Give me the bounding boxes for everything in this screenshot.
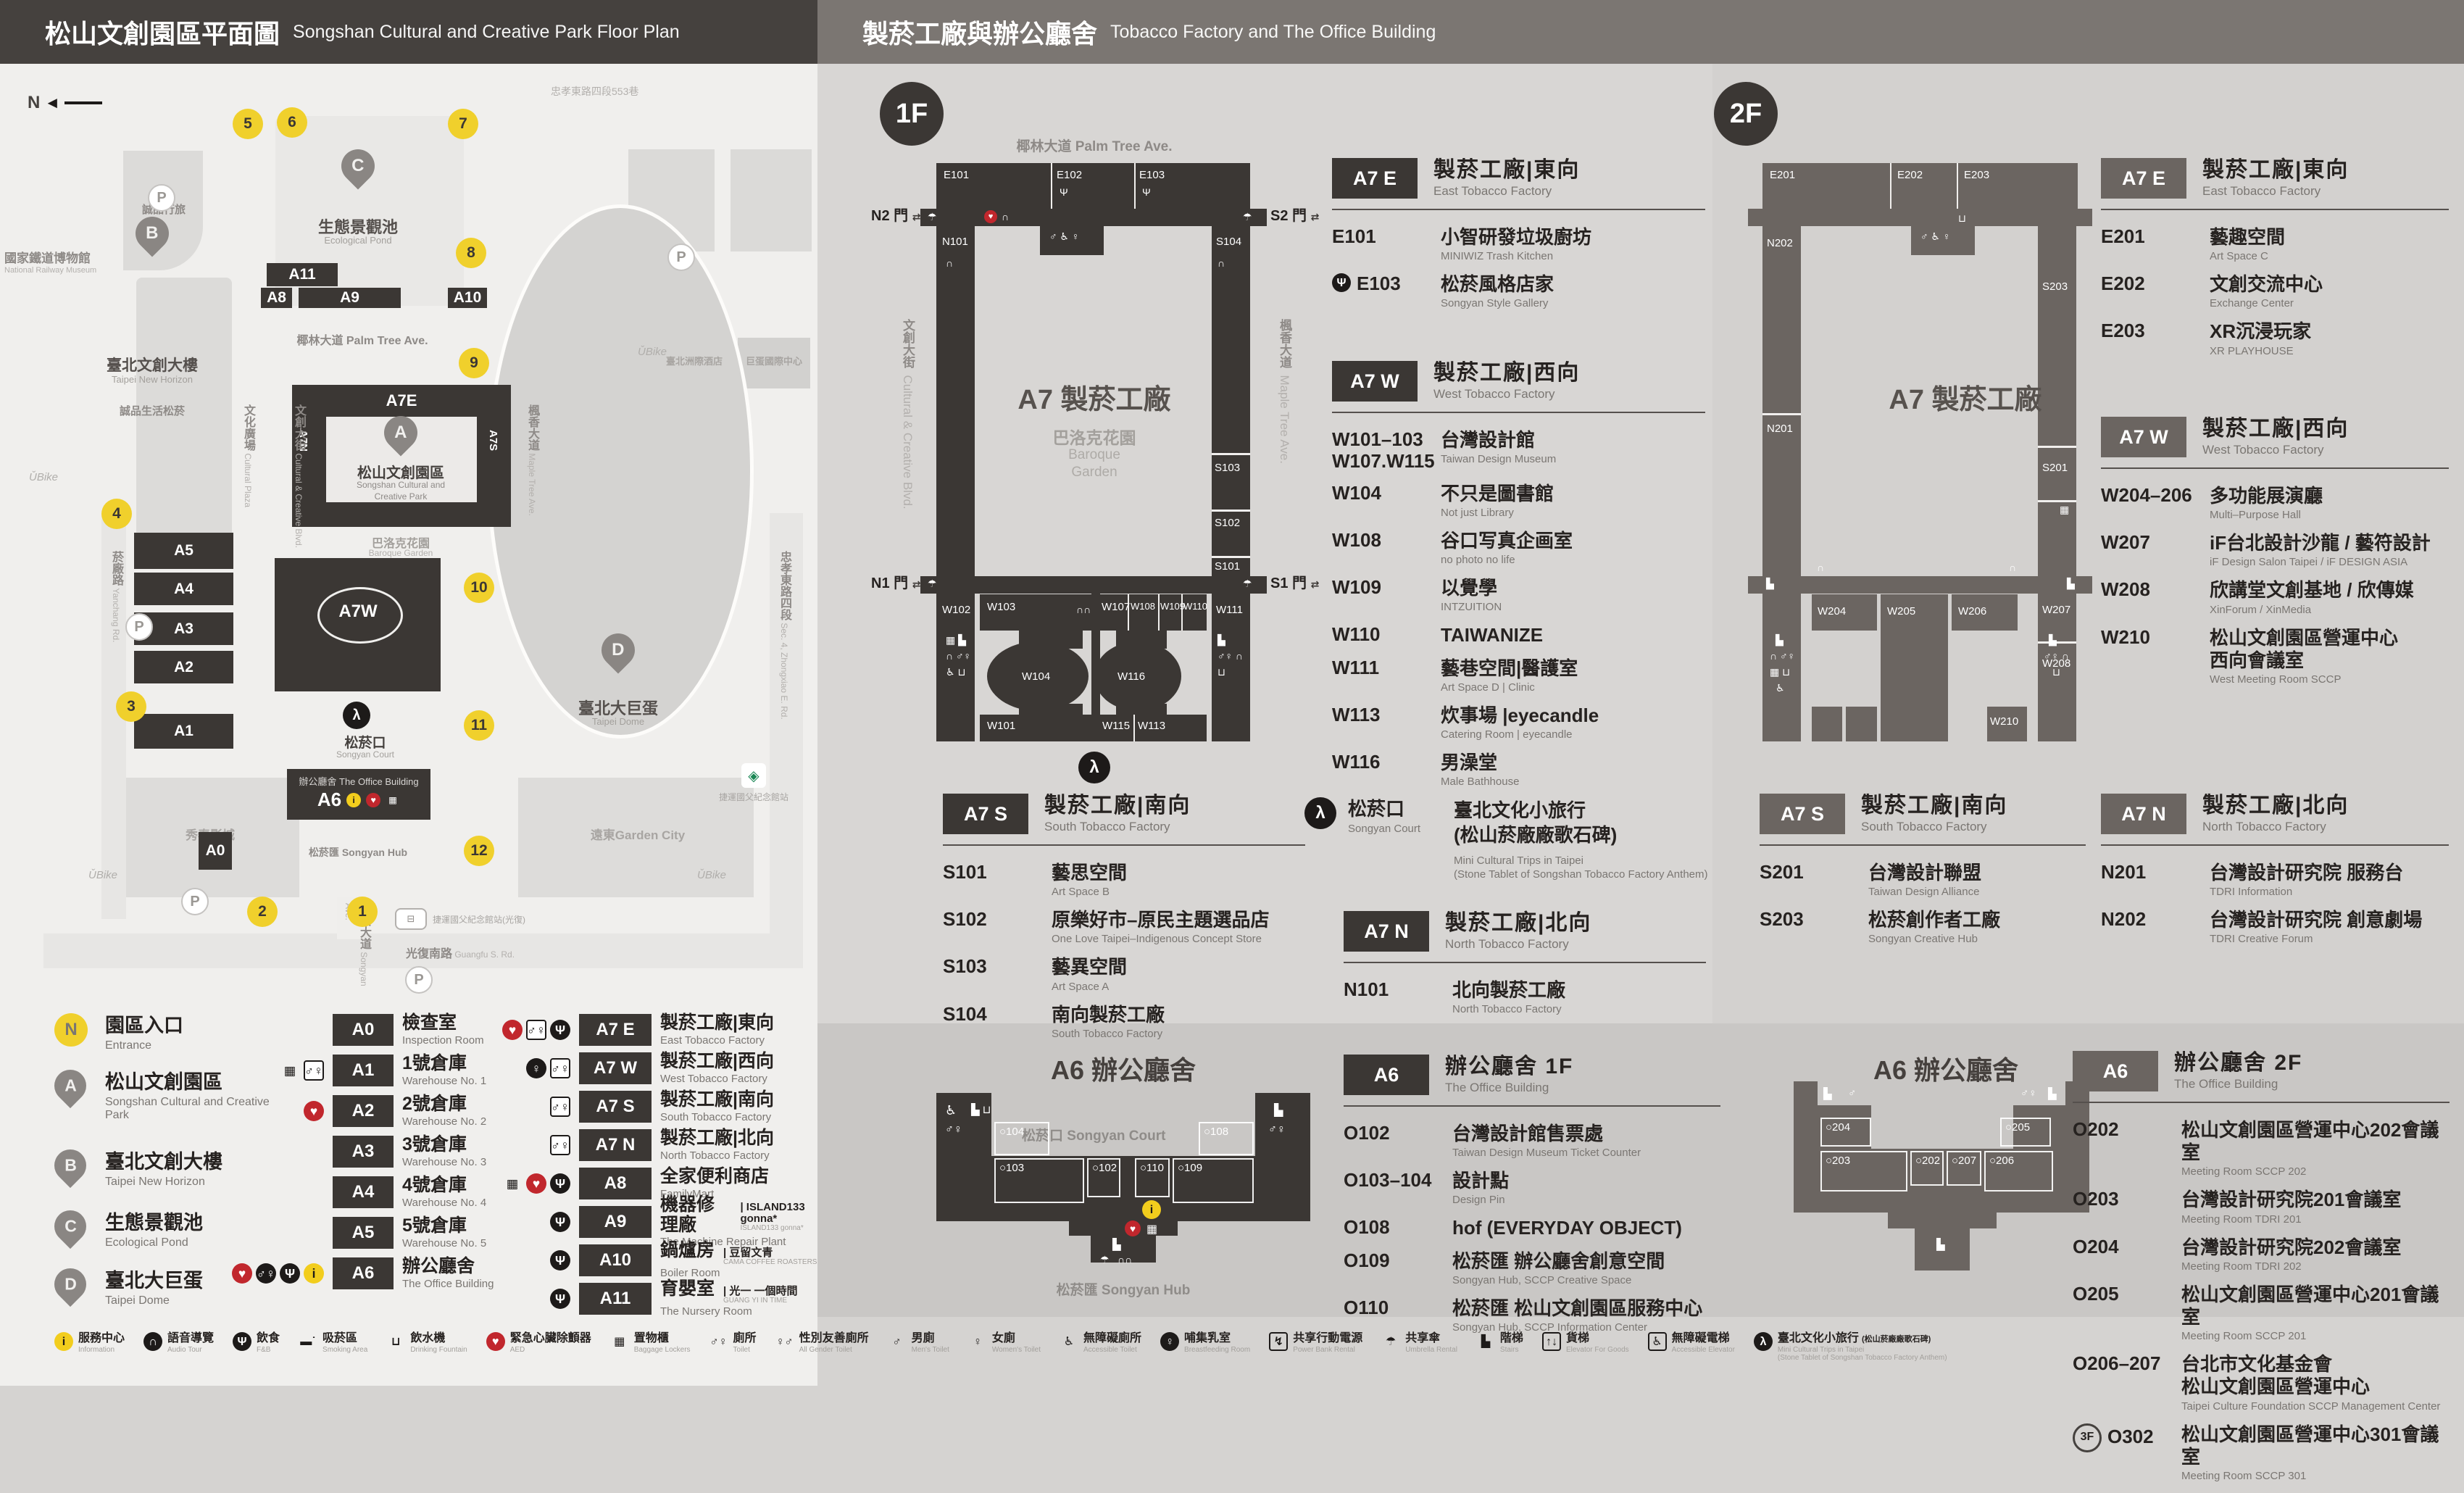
room-en: One Love Taipei–Indigenous Concept Store [1052, 933, 1269, 946]
songshan-park-floor-plan: { "header_left": {"zh": "松山文創園區平面圖", "en… [0, 0, 2464, 1386]
room-zh: 台灣設計館 [1441, 429, 1556, 452]
facility-icon: ♂ [1848, 1087, 1856, 1099]
room-code: W101–103W107.W115 [1332, 429, 1441, 473]
facility-icon: ▙ [1936, 1238, 1945, 1251]
room-O202: ○202 [1910, 1151, 1944, 1186]
f1-a7w-list-row-W108: W108谷口写真企画室no photo no life [1332, 530, 1705, 567]
a6-office-line: 辦公廳舍 The Office Building [287, 774, 430, 788]
garden-city-label: 遠東Garden City [529, 825, 746, 843]
toilet-icon: ♂♀ [550, 1058, 570, 1078]
room-text: 松菸匯 松山文創園區服務中心Songyan Hub, SCCP Informat… [1452, 1297, 1702, 1334]
trips-icon: λ [1754, 1332, 1773, 1351]
room-zh: 松菸風格店家 [1441, 273, 1554, 296]
f1-a7n-list-header: A7 N製菸工廠|北向North Tobacco Factory [1344, 911, 1706, 952]
f2-a7e-list-rule [2101, 209, 2449, 210]
legend-factory-A7E: ♥♂♀ΨA7 E製菸工廠|東向East Tobacco Factory [504, 1013, 774, 1047]
f2-a7n-list-tile: A7 N [2101, 794, 2186, 834]
room-code: O110 [1344, 1297, 1452, 1334]
facility-icon: ▙ [1218, 634, 1225, 646]
room-O207: ○207 [1947, 1151, 1981, 1186]
new-horizon-block [136, 278, 232, 560]
a7-factory-label-2f: A7 製菸工廠 [1748, 377, 2183, 417]
songyan-court-walk-icon: λ [1078, 752, 1110, 783]
left-header-title-zh: 松山文創園區平面圖 [45, 13, 280, 51]
room-W207: W207 [2042, 604, 2070, 616]
f1-a7w-list-row-W110: W110TAIWANIZE [1332, 624, 1705, 646]
legend-place-C: C生態景觀池Ecological Pond [54, 1210, 203, 1249]
facility-icon: ∩ [2009, 562, 2016, 573]
room-en: TDRI Creative Forum [2210, 933, 2422, 946]
f1-a7w-list-row-W101–103: W101–103W107.W115台灣設計館Taiwan Design Muse… [1332, 429, 1705, 473]
room-O108: ○108 [1199, 1122, 1254, 1155]
toilet-icon: ♂♀ [304, 1060, 324, 1081]
room-en: Catering Room | eyecandle [1441, 728, 1599, 741]
room-en: Meeting Room SCCP 202 [2181, 1165, 2450, 1178]
facility-icon: ∩ ♂♀ [1770, 650, 1795, 662]
place-pin-B: B [54, 1149, 88, 1183]
room-en: no photo no life [1441, 554, 1573, 567]
f1-a7s-list-header: A7 S製菸工廠|南向South Tobacco Factory [943, 794, 1305, 834]
place-pin-A: A [54, 1070, 88, 1103]
room-code: O109 [1344, 1250, 1452, 1287]
f2-a7w-list-tile: A7 W [2101, 417, 2186, 457]
room-text: 松菸創作者工廠Songyan Creative Hub [1868, 909, 2000, 946]
parking-icon: P [405, 966, 433, 994]
room-en: Art Space C [2210, 250, 2285, 263]
facility-icon: ▙ [1112, 1238, 1121, 1251]
legend-place-text: 松山文創園區Songshan Cultural and Creative Par… [105, 1070, 272, 1123]
room-W107: W107 [1102, 601, 1130, 613]
room-en: North Tobacco Factory [1452, 1003, 1565, 1016]
legend-tile-A4: A4 [333, 1176, 394, 1208]
f1-a7e-list-row-E103: ΨE103松菸風格店家Songyan Style Gallery [1332, 273, 1705, 310]
room-code: O202 [2073, 1119, 2181, 1178]
room-text: 松山文創園區營運中心201會議室Meeting Room SCCP 201 [2181, 1284, 2450, 1343]
legend-row-text: 3號倉庫Warehouse No. 3 [402, 1135, 486, 1168]
f2-a6-list-title-en: The Office Building [2174, 1078, 2302, 1091]
f2-a6-list-row-O206–207: O206–207台北市文化基金會松山文創園區營運中心Taipei Culture… [2073, 1353, 2450, 1413]
f1-a7e-list-tile: A7 E [1332, 158, 1418, 199]
park-name-zh: 松山文創園區 [321, 461, 480, 482]
parking-icon: P [667, 244, 695, 271]
court-en2: (Stone Tablet of Songshan Tobacco Factor… [1454, 868, 1708, 882]
room-O206: ○206 [1984, 1151, 2053, 1192]
legend-row-text: 製菸工廠|南向South Tobacco Factory [660, 1090, 774, 1123]
room-code: S102 [943, 909, 1052, 946]
bus-stop: ⊟捷運國父紀念館站(光復) [395, 908, 525, 930]
room-O110: ○110 [1135, 1158, 1170, 1197]
room-S104: S104 [1216, 236, 1241, 248]
f1-a7w-list-row-W113: W113炊事場 |eyecandleCatering Room | eyecan… [1332, 704, 1705, 741]
room-zh: 小智研發垃圾廚坊 [1441, 226, 1591, 249]
room-zh: 台灣設計研究院 創意劇場 [2210, 909, 2422, 931]
entrance-6: 6 [277, 107, 307, 138]
footer-item-fnb: Ψ飲食F&B [233, 1332, 280, 1354]
toilet-icon: ♂♀ [526, 1020, 546, 1040]
room-zh: 不只是圖書館 [1441, 483, 1554, 505]
room-O102: ○102 [1087, 1158, 1120, 1197]
legend-tile-A6: A6 [333, 1257, 394, 1289]
facility-icon: ♂♀ [945, 1123, 962, 1136]
room-zh: 南向製菸工廠 [1052, 1004, 1165, 1026]
room-en: South Tobacco Factory [1052, 1028, 1165, 1041]
footer-en: Men's Toilet [912, 1346, 949, 1354]
palm-ave-label: 椰林大道 Palm Tree Ave. [239, 330, 486, 348]
room-S203: S203 [2042, 280, 2068, 293]
f1-a6-list-row-O110: O110松菸匯 松山文創園區服務中心Songyan Hub, SCCP Info… [1344, 1297, 1720, 1334]
legend-warehouse-A4: A44號倉庫Warehouse No. 4 [266, 1176, 486, 1209]
room-en: TDRI Information [2210, 886, 2403, 899]
room-code: W207 [2101, 532, 2210, 569]
room-zh: 藝巷空間|醫護室 [1441, 657, 1578, 680]
aed-icon: ♥ [486, 1332, 505, 1351]
footer-item-men: ♂男廁Men's Toilet [888, 1332, 949, 1354]
park-name-en1: Songshan Cultural and [321, 480, 480, 490]
facility-icon: ∩∩ [1117, 1254, 1132, 1265]
legend-warehouse-A2: ♥A22號倉庫Warehouse No. 2 [266, 1094, 486, 1128]
room-zh: 藝思空間 [1052, 862, 1127, 884]
f1-a7s-list-row-S103: S103藝異空間Art Space A [943, 956, 1305, 993]
f1-a7e-list-row-E101: E101小智研發垃圾廚坊MINIWIZ Trash Kitchen [1332, 226, 1705, 263]
facility-icon: ▙ [1766, 578, 1774, 590]
legend-factory-A7N: ♂♀A7 N製菸工廠|北向North Tobacco Factory [504, 1128, 774, 1162]
legend-row-zh: 機器修理廠| ISLAND133 gonna*ISLAND133 gonna* [660, 1195, 823, 1235]
room-code: E201 [2101, 226, 2210, 263]
legend-place-zh: 生態景觀池 [105, 1212, 203, 1234]
toiletDark-icon: ♂♀ [256, 1263, 276, 1284]
parking-icon: P [125, 613, 153, 641]
entrance-9: 9 [459, 348, 489, 378]
legend-row-icons: ♥♂♀Ψ [504, 1020, 570, 1040]
room-text: TAIWANIZE [1441, 624, 1543, 646]
facility-icon: ▙ [1776, 634, 1784, 646]
room-code: O205 [2073, 1284, 2181, 1343]
aed-icon-wrap: ♥ [1125, 1220, 1141, 1236]
room-O103: ○103 [994, 1158, 1084, 1203]
room-code: O203 [2073, 1189, 2181, 1226]
room-text: 設計點Design Pin [1452, 1170, 1509, 1207]
footer-item-lockers: ▦置物櫃Baggage Lockers [610, 1332, 691, 1354]
court-desc: 臺北文化小旅行(松山菸廠廠歌石碑)Mini Cultural Trips in … [1454, 797, 1708, 882]
entrance-1: 1 [347, 897, 378, 927]
legend-place-zh: 臺北文創大樓 [105, 1151, 222, 1173]
facility-icon: ▦ [1146, 1222, 1157, 1236]
facility-icon: ♿ ⊔ [946, 666, 965, 678]
legend-row-zh: 鍋爐房| 豆留文青CAMA COFFEE ROASTERS [660, 1241, 817, 1266]
f1-a7n-list-rule [1344, 962, 1706, 963]
facility-icon: ☂ [928, 211, 937, 223]
footer-en: Accessible Elevator [1672, 1346, 1735, 1354]
footer-zh: 語音導覽 [167, 1332, 214, 1345]
room-text: 松菸匯 辦公廳舍創意空間Songyan Hub, SCCP Creative S… [1452, 1250, 1665, 1287]
north-compass: N ◄ [28, 93, 102, 113]
room-S102: S102 [1215, 517, 1240, 529]
room-W206: W206 [1958, 605, 1986, 617]
f1-a7w-list-row-W109: W109以覺學INTZUITION [1332, 577, 1705, 614]
room-zh: hof (EVERYDAY OBJECT) [1452, 1217, 1682, 1239]
room-code: E203 [2101, 320, 2210, 357]
footer-item-text: 哺集乳室Breastfeeding Room [1184, 1332, 1250, 1354]
room-text: 台灣設計館Taiwan Design Museum [1441, 429, 1556, 473]
f2-a6-list: A6辦公廳舍 2FThe Office BuildingO202松山文創園區營運… [2073, 1051, 2450, 1493]
hub-label: 松菸匯 Songyan Hub [286, 845, 430, 860]
f2-a6-list-title-zh: 辦公廳舍 2F [2174, 1051, 2302, 1075]
f2-a7e-list-row-E202: E202文創交流中心Exchange Center [2101, 273, 2449, 310]
room-en: Meeting Room SCCP 201 [2181, 1330, 2450, 1343]
legend-row-icons: ▦♥Ψ [504, 1173, 570, 1194]
f2-a7s-list-title-en: South Tobacco Factory [1861, 820, 2007, 834]
lockers-icon: ▦ [280, 1060, 300, 1081]
f1-a6-list-row-O109: O109松菸匯 辦公廳舍創意空間Songyan Hub, SCCP Creati… [1344, 1250, 1720, 1287]
room-text: 炊事場 |eyecandleCatering Room | eyecandle [1441, 704, 1599, 741]
f1-a6-list-title-en: The Office Building [1445, 1081, 1573, 1095]
room-W210: W210 [1990, 715, 2018, 728]
facility-icon: ⊔ [2052, 666, 2060, 678]
footer-en: Smoking Area [322, 1346, 367, 1354]
legend-row-text: 4號倉庫Warehouse No. 4 [402, 1176, 486, 1209]
room-code: W113 [1332, 704, 1441, 741]
facility-icon: ▙ [2049, 634, 2057, 646]
facility-icon: ♿ [945, 1103, 957, 1118]
legend-row-icons: Ψ [504, 1250, 570, 1270]
allgender-icon: ♀♂ [775, 1332, 794, 1351]
f2-a7w-list-row-W210: W210松山文創園區營運中心西向會議室West Meeting Room SCC… [2101, 627, 2449, 686]
room-zh2: 松山文創園區營運中心 [2181, 1376, 2440, 1398]
room-en: Taiwan Design Alliance [1868, 886, 1981, 899]
court-walk-icon: λ [343, 702, 370, 729]
entrance-symbol: N [54, 1013, 88, 1047]
facility-icon: ▦ ⊔ [1770, 666, 1790, 678]
f1-a7e-list-title-zh: 製菸工廠|東向 [1433, 158, 1580, 182]
legend-place-zh: 松山文創園區 [105, 1071, 272, 1094]
legend-row-icons: Ψ [504, 1289, 570, 1309]
room-text: 松山文創園區營運中心301會議室Meeting Room SCCP 301 [2181, 1423, 2450, 1483]
gate-S2門: S2 門 ⇄ [1270, 204, 1318, 225]
city-block [731, 149, 812, 251]
room-code: W109 [1332, 577, 1441, 614]
facility-icon: ♂ ♿ ♀ [1920, 230, 1950, 243]
f1-a7w-list: A7 W製菸工廠|西向West Tobacco FactoryW101–103W… [1332, 361, 1705, 799]
f1-a6-list: A6辦公廳舍 1FThe Office BuildingO102台灣設計館售票處… [1344, 1055, 1720, 1344]
f1-a7s-list-title-en: South Tobacco Factory [1044, 820, 1191, 834]
legend-place-en: Taipei New Horizon [105, 1176, 222, 1189]
legend-factory-A7W: ♀♂♀A7 W製菸工廠|西向West Tobacco Factory [504, 1052, 774, 1085]
legend-partner: | 豆留文青CAMA COFFEE ROASTERS [723, 1247, 817, 1266]
facility-icon: Ψ [1142, 186, 1151, 198]
room-W111: W111 [1216, 604, 1243, 616]
room-text: 多功能展演廳Multi–Purpose Hall [2210, 485, 2323, 522]
room-en: Design Pin [1452, 1194, 1509, 1207]
left-header: 松山文創園區平面圖 Songshan Cultural and Creative… [0, 0, 817, 64]
room-zh: 台北市文化基金會 [2181, 1353, 2440, 1376]
room-en: Songyan Creative Hub [1868, 933, 2000, 946]
f1-a6-list-rule [1344, 1105, 1720, 1107]
legend-row-text: 1號倉庫Warehouse No. 1 [402, 1054, 486, 1087]
room-zh: 原樂好市–原民主題選品店 [1052, 909, 1269, 931]
footer-en: Toilet [733, 1346, 757, 1354]
pond-en: Ecological Pond [278, 235, 438, 246]
breastfeeding-icon: ♀ [1160, 1332, 1179, 1351]
legend-row-zh: 育嬰室| 光一 一個時間GUANG YI IN TIME [660, 1279, 798, 1305]
legend-row-en: Warehouse No. 4 [402, 1197, 486, 1210]
f2-a7w-list-row-W204–206: W204–206多功能展演廳Multi–Purpose Hall [2101, 485, 2449, 522]
lockers-icon: ▦ [610, 1332, 629, 1351]
footer-zh: 臺北文化小旅行(松山菸廠廠歌石碑) [1778, 1332, 1947, 1345]
legend-place-D: D臺北大巨蛋Taipei Dome [54, 1268, 203, 1307]
legend-row-zh: 1號倉庫 [402, 1054, 486, 1074]
footer-item-text: 廁所Toilet [733, 1332, 757, 1354]
legend-place-B: B臺北文創大樓Taipei New Horizon [54, 1149, 222, 1189]
room-E102: E102 [1057, 169, 1082, 181]
footer-item-toiletP: ♂♀廁所Toilet [709, 1332, 757, 1354]
room-en: Songyan Style Gallery [1441, 297, 1554, 310]
legend-row-text: 育嬰室| 光一 一個時間GUANG YI IN TIMEThe Nursery … [660, 1279, 798, 1318]
footer-en: Mini Cultural Trips in Taipei [1778, 1346, 1947, 1354]
footer-item-text: 性別友善廁所All Gender Toilet [799, 1332, 869, 1354]
park-building-A11: A11 [267, 263, 338, 286]
room-code: S201 [1760, 862, 1868, 899]
room-zh: 松山文創園區營運中心201會議室 [2181, 1284, 2450, 1328]
room-W205: W205 [1887, 605, 1915, 617]
info-icon: i [304, 1263, 324, 1284]
f2-a7n-list-title-zh: 製菸工廠|北向 [2202, 794, 2349, 818]
f2-a7n-list-row-N202: N202台灣設計研究院 創意劇場TDRI Creative Forum [2101, 909, 2449, 946]
legend-factory-A11: ΨA11育嬰室| 光一 一個時間GUANG YI IN TIMEThe Nurs… [504, 1282, 798, 1315]
room-text: 欣講堂文創基地 / 欣傳媒XinForum / XinMedia [2210, 579, 2414, 616]
lockers-icon: ▦ [386, 793, 400, 807]
footer-item-text: 吸菸區Smoking Area [322, 1332, 367, 1354]
room-text: 以覺學INTZUITION [1441, 577, 1502, 614]
f1-a7w-list-title-en: West Tobacco Factory [1433, 388, 1580, 402]
facility-icon: ☂ [1100, 1254, 1110, 1266]
fnb-icon: Ψ [280, 1263, 300, 1284]
f1-a7s-list-rule [943, 844, 1305, 846]
powerbank-icon: ↯ [1269, 1332, 1288, 1351]
mrt-station: ◈捷運國父紀念館站 [714, 763, 794, 803]
f1-a7s-list-row-S102: S102原樂好市–原民主題選品店One Love Taipei–Indigeno… [943, 909, 1305, 946]
f2-a7w-list: A7 W製菸工廠|西向West Tobacco FactoryW204–206多… [2101, 417, 2449, 696]
legend-row-zh: 全家便利商店 [660, 1167, 769, 1187]
room-O203: ○203 [1820, 1151, 1907, 1192]
legend-place-A: A松山文創園區Songshan Cultural and Creative Pa… [54, 1070, 272, 1123]
place-pin-D: D [54, 1268, 88, 1302]
room-E101: E101 [944, 169, 969, 181]
facility-icon: ▦ ▙ [946, 634, 966, 646]
room-zh: XR沉浸玩家 [2210, 320, 2311, 343]
f2-a6-list-title: 辦公廳舍 2FThe Office Building [2174, 1051, 2302, 1091]
legend-tile-A5: A5 [333, 1217, 394, 1249]
entrance-4: 4 [101, 499, 132, 529]
room-text: 松山文創園區營運中心西向會議室West Meeting Room SCCP [2210, 627, 2398, 686]
footer-item-text: 語音導覽Audio Tour [167, 1332, 214, 1354]
room-text: 台灣設計研究院202會議室Meeting Room TDRI 202 [2181, 1236, 2401, 1273]
footer-item-women: ♀女廁Women's Toilet [968, 1332, 1041, 1354]
office-building-map-2f: A6 辦公廳舍 ○204○203○202○207○206○205▙♂♂♀▙▙ [1776, 1036, 2116, 1297]
room-code: O108 [1344, 1217, 1452, 1239]
parking-icon: P [181, 888, 209, 915]
court-zh: 松菸口 [293, 732, 438, 752]
aed-icon: ♥ [304, 1101, 324, 1121]
footer-en2: (Stone Tablet of Songshan Tobacco Factor… [1778, 1354, 1947, 1362]
f2-a7s-list-title: 製菸工廠|南向South Tobacco Factory [1861, 794, 2007, 834]
legend-row-en: The Office Building [402, 1278, 494, 1291]
railway-museum-label: 國家鐵道博物館National Railway Museum [4, 251, 96, 276]
f1-a7s-list-tile: A7 S [943, 794, 1028, 834]
legend-row-zh: 2號倉庫 [402, 1094, 486, 1115]
f2-a7w-list-title-zh: 製菸工廠|西向 [2202, 417, 2349, 441]
room-W116: W116 [1117, 670, 1145, 683]
f1-a7s-list-row-S104: S104南向製菸工廠South Tobacco Factory [943, 1004, 1305, 1041]
room-code: O103–104 [1344, 1170, 1452, 1207]
entrance-2: 2 [247, 897, 278, 927]
footer-item-text: 臺北文化小旅行(松山菸廠廠歌石碑)Mini Cultural Trips in … [1778, 1332, 1947, 1362]
room-O104: ○104 [994, 1122, 1049, 1155]
new-horizon-zh: 臺北文創大樓 [87, 354, 217, 375]
f2-a6-list-row-O202: O202松山文創園區營運中心202會議室Meeting Room SCCP 20… [2073, 1119, 2450, 1178]
room-en: Art Space A [1052, 981, 1127, 994]
f1-a7e-list-header: A7 E製菸工廠|東向East Tobacco Factory [1332, 158, 1705, 199]
fnb-icon: Ψ [550, 1250, 570, 1270]
court-zh: 松菸口 [1348, 799, 1442, 820]
footer-zh: 廁所 [733, 1332, 757, 1345]
breastfeeding-icon: ♀ [526, 1058, 546, 1078]
room-code: ΨE103 [1332, 273, 1441, 310]
women-icon: ♀ [968, 1332, 987, 1351]
footer-item-breastfeeding: ♀哺集乳室Breastfeeding Room [1160, 1332, 1250, 1354]
court-walk-icon: λ [1304, 797, 1336, 829]
room-code: W116 [1332, 752, 1441, 789]
audio-icon: ∩ [143, 1332, 162, 1351]
facility-icon: ♂♀ [1268, 1123, 1286, 1136]
railway-zh: 國家鐵道博物館 [4, 251, 96, 266]
legend-partner-en: GUANG YI IN TIME [723, 1297, 798, 1305]
room-N201: N201 [1767, 423, 1793, 435]
f2-a6-list-row-O205: O205松山文創園區營運中心201會議室Meeting Room SCCP 20… [2073, 1284, 2450, 1343]
baroque-garden-en2: Garden [877, 465, 1312, 481]
ubike-station-label: ǓBike [638, 346, 667, 358]
court-en1: Mini Cultural Trips in Taipei [1454, 854, 1708, 868]
ubike-station-label: ǓBike [88, 869, 117, 881]
park-building-A8: A8 [261, 288, 292, 308]
legend-row-en: Warehouse No. 5 [402, 1238, 486, 1250]
a7s-label: A7S [487, 430, 499, 451]
footer-item-trips: λ臺北文化小旅行(松山菸廠廠歌石碑)Mini Cultural Trips in… [1754, 1332, 1947, 1362]
room-code: W111 [1332, 657, 1441, 694]
info-icon: i [346, 793, 361, 807]
facility-icon: ▙ [1274, 1103, 1283, 1118]
room-code2: W107.W115 [1332, 451, 1441, 473]
legend-place-en: Ecological Pond [105, 1236, 203, 1249]
smoking-icon: ▬˙ [299, 1332, 317, 1351]
room-en: XinForum / XinMedia [2210, 604, 2414, 617]
room-zh: 台灣設計研究院202會議室 [2181, 1236, 2401, 1259]
room-text: 台灣設計研究院201會議室Meeting Room TDRI 201 [2181, 1189, 2401, 1226]
f1-a7w-list-tile: A7 W [1332, 361, 1418, 402]
f2-a6-list-rule [2073, 1102, 2450, 1103]
room-W113: W113 [1138, 720, 1165, 732]
footer-zh: 緊急心臟除顫器 [510, 1332, 591, 1345]
legend-tile-A7E: A7 E [579, 1014, 652, 1046]
legend-row-text: 製菸工廠|東向East Tobacco Factory [660, 1013, 774, 1047]
men-icon: ♂ [888, 1332, 907, 1351]
footer-en: F&B [257, 1346, 280, 1354]
room-code: W204–206 [2101, 485, 2210, 522]
dome-en: Taipei Dome [538, 716, 698, 727]
f1-a6-list-title-zh: 辦公廳舍 1F [1445, 1055, 1573, 1078]
toilet-icon: ♂♀ [550, 1135, 570, 1155]
f2-a7n-list-row-N201: N201台灣設計研究院 服務台TDRI Information [2101, 862, 2449, 899]
court-en: Songyan Court [1348, 823, 1442, 835]
